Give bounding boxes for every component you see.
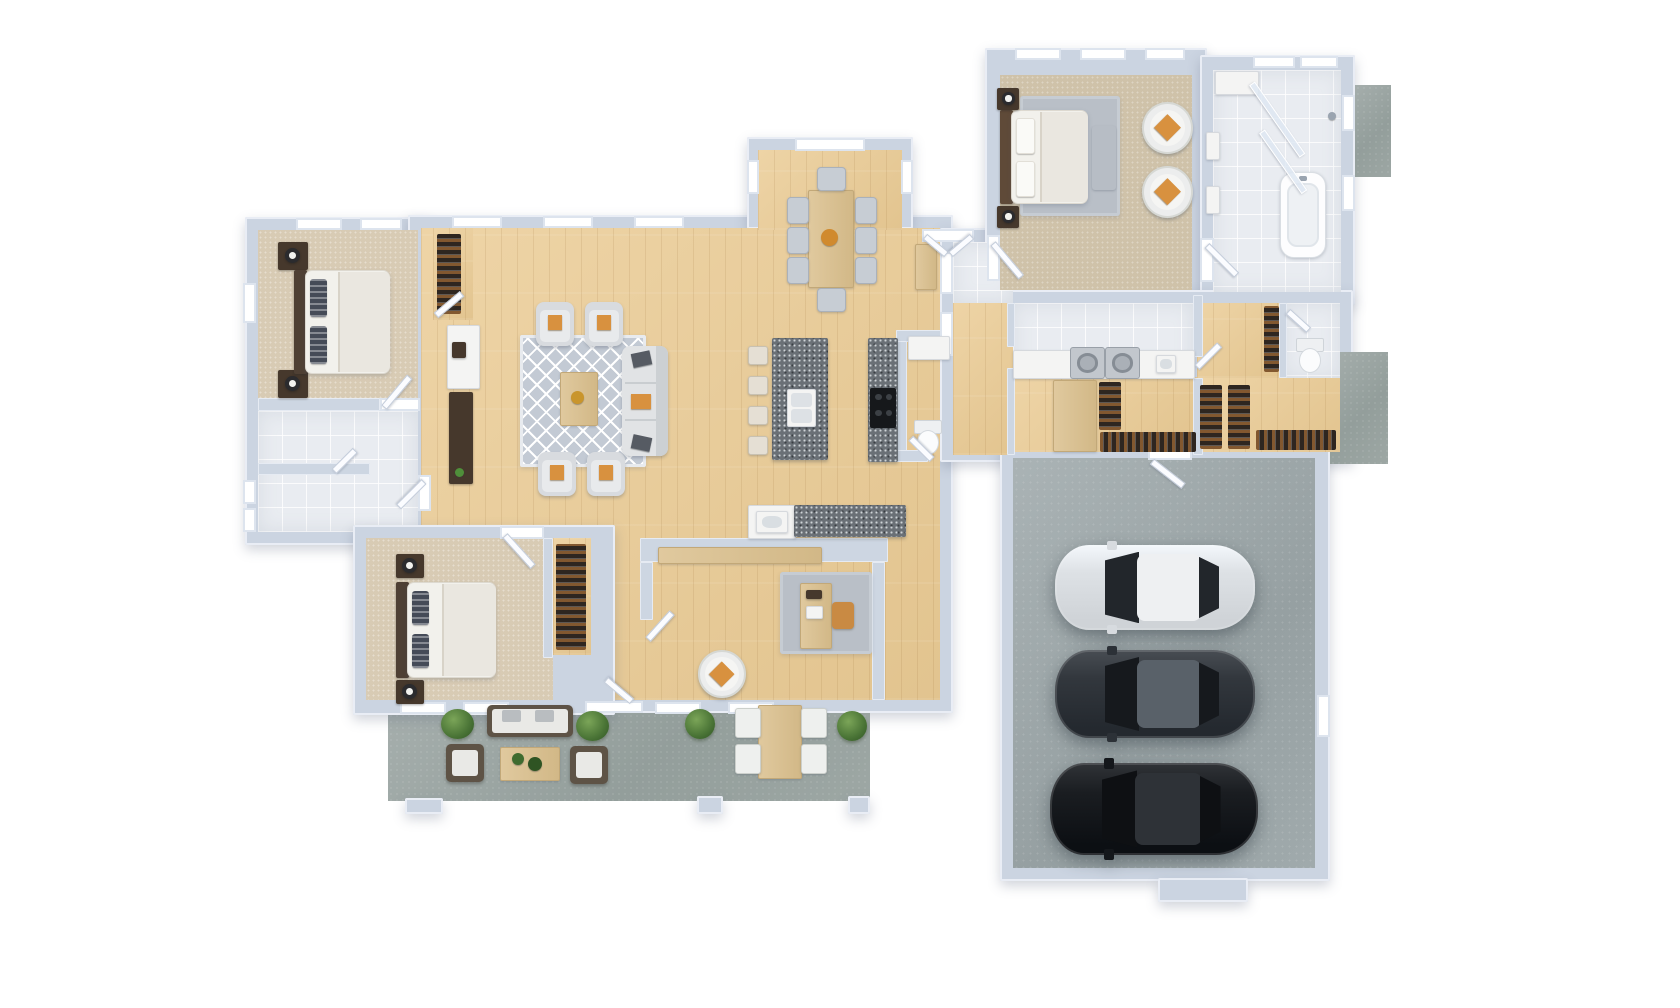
window-living-north-b [543,216,593,228]
dining-chair-2 [787,227,809,254]
side-porch [1355,85,1391,177]
cushion-line-a [625,382,656,384]
car-windshield [1102,770,1137,847]
farm-sink-basin [756,511,788,533]
car-roof [1137,554,1201,620]
outdoor-chair-a [446,744,484,782]
car-mirror-top [1104,758,1114,768]
window-nook-east [901,160,913,194]
laptop [806,606,823,619]
bath-niche-a [1206,132,1220,160]
lamp-shade [1005,213,1011,219]
window-bath2-west-a [243,480,256,504]
living-armchair-2 [585,302,623,346]
out-chair-cushion [576,752,602,778]
car-windshield [1105,552,1139,623]
dining-chair-8 [817,288,846,312]
car-windshield [1105,657,1139,731]
window-living-north-a [452,216,502,228]
bed-duvet [442,584,496,676]
floor-plan-canvas [0,0,1680,1008]
washer-door [1077,353,1098,372]
bedroom3-closet-wall [543,538,553,658]
burner-1 [886,394,893,400]
lamp-shade [406,688,413,695]
bath-niche-b [1206,186,1220,214]
office-left-wall [640,562,653,620]
bed-pillow-b [412,634,429,669]
cushion-line-b [625,419,656,421]
shower-head [1328,112,1336,120]
patio-dining-chair-4 [801,744,827,774]
accent-pillow [599,465,613,480]
car-mirror-bottom [1107,625,1117,634]
dining-chair-7 [817,167,846,191]
basin [762,516,781,529]
bar-stool-2 [748,376,768,395]
living-armchair-1 [536,302,574,346]
bedroom3-lamp-1 [402,558,417,573]
dining-chair-6 [855,257,877,284]
window-nook-west [747,160,759,194]
topiary-c [685,709,715,739]
washer [1070,347,1105,379]
throw-pillow-dark-b [631,434,653,452]
master-chair-2 [1142,166,1193,218]
dining-chair-5 [855,227,877,254]
car-rear-window [1199,662,1219,725]
laundry-sink [1156,355,1176,373]
bedroom2-south-wall [258,398,380,411]
accent-pillow [548,315,562,330]
accent-pillow [597,315,611,330]
closet-rack-a [1200,385,1222,449]
master-chair-1 [1142,102,1193,154]
wc-toilet [1294,338,1324,372]
bed-pillow-b [1016,161,1035,197]
master-bed-bench [1092,126,1116,190]
mudroom-bench [1053,380,1097,452]
garage-side-door [1317,695,1330,737]
car-gray [1055,650,1255,738]
hall-laundry-wall-a [1007,303,1015,347]
master-bed [1000,110,1088,204]
closet-divider-wall-a [1193,295,1203,357]
window-master-north-b [1080,48,1126,60]
bedroom3-bed [396,582,496,678]
car-mirror-bottom [1104,849,1114,859]
closet-rack-b [1228,385,1250,449]
office-credenza [658,547,822,564]
living-sofa [622,346,668,456]
window-bath2-west-b [243,508,256,532]
living-armchair-3 [538,452,576,496]
table-plant-b [528,757,542,771]
entry-console [915,244,937,290]
dining-chair-3 [787,257,809,284]
window-bedroom2-north-a [296,218,342,230]
window-master-north-c [1145,48,1185,60]
living-foyer-gap [940,252,953,294]
coat-rack [1099,382,1121,430]
window-bedroom2-north-b [360,218,402,230]
decor-bowl [571,391,584,404]
window-living-north-c [634,216,684,228]
shoe-rack-a [1100,432,1196,452]
bar-stool-3 [748,406,768,425]
patio-dining-chair-3 [801,708,827,738]
console-plant [455,468,464,477]
bed-pillow-a [310,279,327,316]
bar-stool-1 [748,346,768,365]
closet3-shelves [556,544,586,650]
car-mirror-bottom [1107,733,1117,743]
espresso-machine [452,342,466,358]
master-lamp-1 [1002,92,1015,105]
lamp-shade [289,252,296,259]
patio-step-right [848,796,870,814]
lamp-shade [289,380,296,387]
patio-dining-chair-1 [735,708,761,738]
master-closet-rack [1264,306,1279,372]
table-plant-a [512,753,524,765]
dining-centerpiece [821,229,838,246]
throw-pillow-dark-a [631,350,653,368]
car-mirror-top [1107,541,1117,550]
car-rear-window [1200,776,1221,842]
window-masterbath-north-b [1300,56,1338,68]
topiary-d [837,711,867,741]
patio-step-center [697,796,723,814]
sofa-back [656,346,668,456]
window-masterbath-east-a [1342,95,1355,131]
accent-pillow [550,465,564,480]
cooktop [870,388,896,428]
car-black [1050,763,1258,855]
dining-chair-4 [855,197,877,224]
out-back-pillow-b [535,710,554,722]
car-roof [1137,660,1201,729]
throw-pillow-orange [631,394,651,408]
car-mirror-top [1107,646,1117,656]
desk-monitor [806,590,822,599]
out-back-pillow-a [502,710,521,722]
master-lamp-2 [1002,210,1015,223]
bedroom2-lamp-2 [285,376,300,391]
toilet-bowl [1299,348,1321,373]
window-masterbath-east-b [1342,175,1355,211]
burner-0 [875,394,882,400]
window-master-north-a [1015,48,1061,60]
basin-b [791,409,812,423]
dining-chair-1 [787,197,809,224]
bed-pillow-a [1016,118,1035,154]
bed-pillow-b [310,326,327,363]
bath2-partition [258,463,370,475]
topiary-b [576,711,609,741]
window-nook-north [795,138,865,151]
dryer [1105,347,1140,379]
bed-duvet [338,272,390,372]
patio-step-left [405,798,443,814]
window-masterbath-north-a [1253,56,1295,68]
bar-stool-4 [748,436,768,455]
bed-pillow-a [412,591,429,626]
lamp-shade [406,562,413,569]
office-lounge-chair [698,650,746,698]
island-sink [787,389,816,427]
lamp-shade [1005,95,1011,101]
car-rear-window [1199,557,1219,618]
patio-dining-chair-2 [735,744,761,774]
bed-duvet [1040,112,1088,202]
office-right-wall [872,562,885,700]
washer-door [1112,353,1133,372]
outdoor-dining-table [758,705,802,779]
hall-floor [953,303,1013,455]
outdoor-sofa [487,705,573,737]
shoe-rack-b [1256,430,1336,450]
hall-laundry-wall-b [1007,368,1015,455]
garage-step [1158,878,1248,902]
powder-vanity [908,336,950,360]
south-counter [794,505,906,537]
topiary-a [441,709,474,739]
burner-3 [886,410,893,416]
car-roof [1135,773,1202,845]
burner-2 [875,410,882,416]
bedroom3-lamp-2 [402,684,417,699]
bedroom2-bed [294,270,390,374]
window-bedroom2-west [243,283,256,323]
out-chair-cushion [452,750,478,776]
car-white [1055,545,1255,630]
living-armchair-4 [587,452,625,496]
basin-a [791,393,812,407]
office-chair [832,602,854,629]
basin [1160,359,1172,369]
bedroom2-lamp-1 [285,248,300,263]
outdoor-chair-b [570,746,608,784]
